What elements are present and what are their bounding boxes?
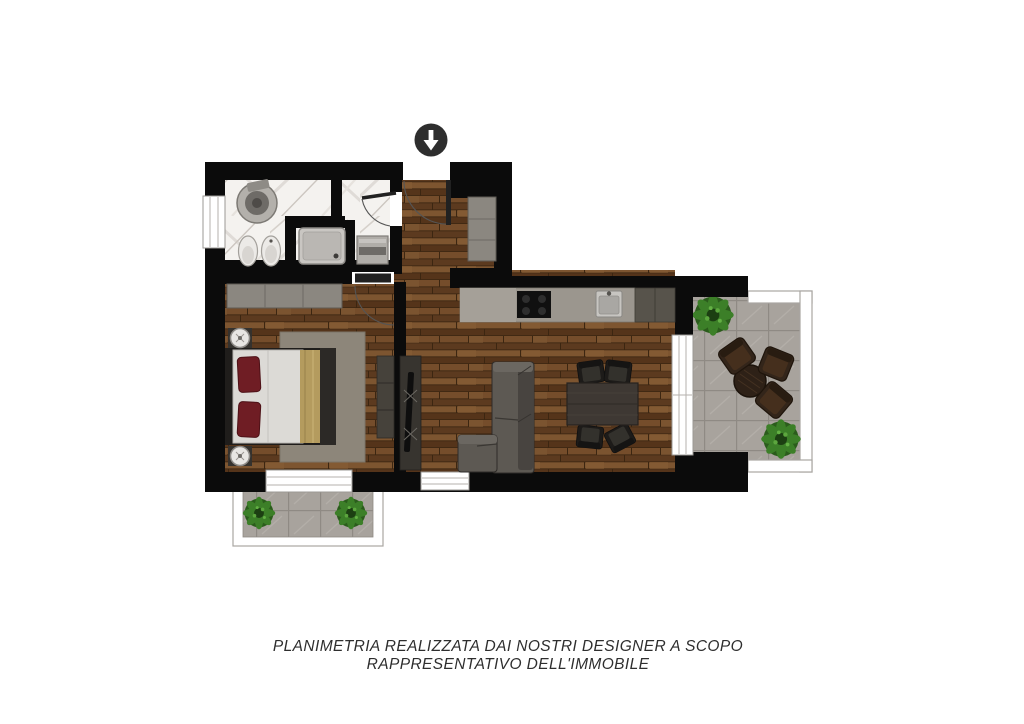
entry-door-leaf	[446, 180, 451, 225]
terrace-door	[672, 335, 693, 455]
nightstand	[228, 446, 252, 466]
toilet	[262, 236, 281, 266]
bed-footboard	[320, 348, 336, 445]
kitchen	[460, 288, 675, 322]
bathroom-window	[203, 196, 225, 248]
bidet	[239, 236, 258, 266]
plant	[243, 497, 275, 529]
shower	[299, 228, 345, 264]
cooktop	[517, 291, 551, 318]
nightstand	[228, 328, 252, 348]
living-room-window	[421, 472, 469, 490]
disclaimer-line2: RAPPRESENTATIVO DELL'IMMOBILE	[367, 656, 650, 673]
screenshot-root: PLANIMETRIA REALIZZATA DAI NOSTRI DESIGN…	[0, 0, 1024, 724]
pillow	[237, 401, 261, 437]
bedroom-window	[266, 470, 352, 492]
bedroom-door-leaf	[355, 274, 391, 283]
plant	[761, 419, 801, 459]
wardrobe	[227, 284, 342, 308]
bedroom-dresser	[377, 356, 394, 438]
balcony	[233, 487, 383, 546]
plant	[692, 294, 733, 335]
entry-opening	[403, 162, 450, 180]
kitchen-sink	[596, 291, 622, 317]
washing-machine	[357, 236, 388, 264]
dining-chair	[604, 359, 632, 384]
entry-cabinet	[468, 197, 496, 261]
disclaimer-line1: PLANIMETRIA REALIZZATA DAI NOSTRI DESIGN…	[273, 638, 743, 655]
kitchen-counter-left	[460, 288, 516, 322]
floor-plan-image: PLANIMETRIA REALIZZATA DAI NOSTRI DESIGN…	[0, 0, 1024, 724]
entry-hall	[468, 197, 496, 261]
tv-unit	[400, 356, 421, 470]
bed-blanket	[300, 350, 320, 443]
double-bed	[225, 348, 336, 445]
pillow	[237, 356, 261, 392]
bathroom-opening	[390, 192, 402, 226]
dining-chair	[577, 359, 606, 384]
dining-chair	[576, 425, 604, 450]
plant	[335, 497, 367, 529]
entrance-marker	[415, 124, 448, 157]
